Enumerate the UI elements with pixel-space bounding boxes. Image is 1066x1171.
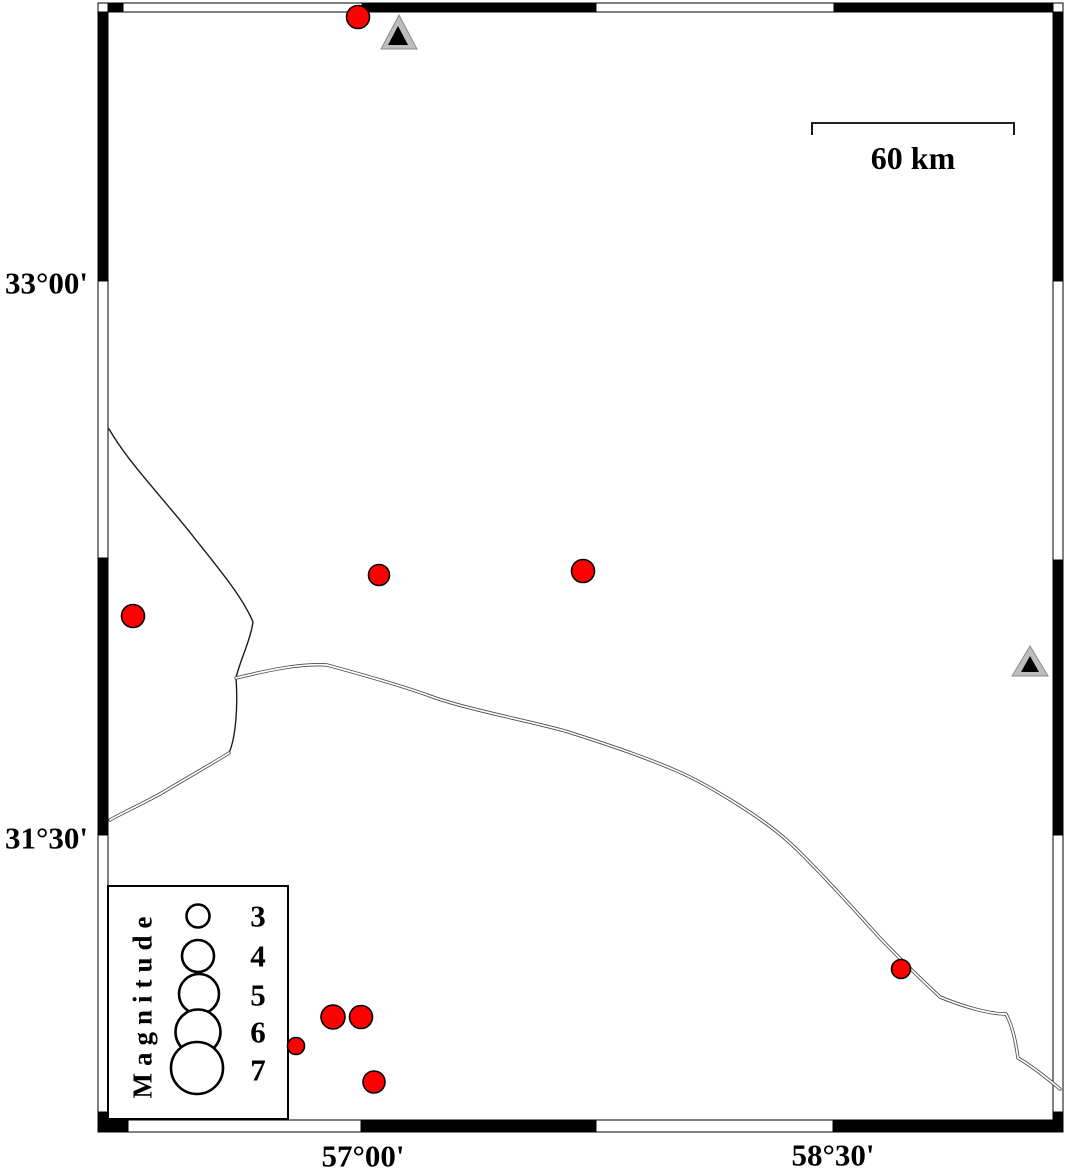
frame-bottom-segment bbox=[128, 1120, 361, 1132]
frame-right-segment bbox=[1053, 12, 1063, 281]
frame-right-segment bbox=[1053, 835, 1063, 1112]
legend-magnitude-3: 3 bbox=[250, 901, 266, 932]
province-boundary-line bbox=[109, 429, 253, 678]
legend-size-circle-4 bbox=[182, 940, 214, 972]
frame-right-segment bbox=[1053, 281, 1063, 560]
frame-left-segment bbox=[98, 558, 108, 835]
legend-magnitude-6: 6 bbox=[250, 1017, 266, 1048]
latitude-label-31-30: 31°30' bbox=[0, 823, 88, 854]
earthquake-marker bbox=[122, 605, 145, 628]
frame-left-segment bbox=[98, 1112, 108, 1132]
legend-magnitude-7: 7 bbox=[250, 1055, 266, 1086]
frame-top-segment bbox=[123, 3, 362, 12]
earthquake-marker bbox=[347, 6, 370, 29]
longitude-label-57-00: 57°00' bbox=[321, 1141, 404, 1171]
latitude-label-33-00: 33°00' bbox=[0, 268, 88, 299]
frame-top-segment bbox=[98, 3, 108, 12]
frame-bottom-segment bbox=[833, 1120, 1053, 1132]
frame-left-segment bbox=[98, 835, 108, 1112]
earthquake-marker bbox=[892, 960, 911, 979]
frame-left-segment bbox=[98, 12, 108, 281]
legend-magnitude-5: 5 bbox=[250, 980, 266, 1011]
seismicity-map: 33°00' 31°30' 57°00' 58°30' 60 km Magnit… bbox=[0, 0, 1066, 1171]
legend-title-magnitude: Magnitude bbox=[130, 909, 157, 1098]
frame-right-segment bbox=[1053, 560, 1063, 835]
frame-bottom-segment bbox=[361, 1120, 596, 1132]
earthquake-marker bbox=[288, 1038, 305, 1055]
earthquake-marker bbox=[572, 560, 595, 583]
frame-left-segment bbox=[98, 281, 108, 558]
longitude-label-58-30: 58°30' bbox=[791, 1140, 874, 1171]
scale-bar-bracket bbox=[812, 123, 1014, 135]
frame-top-segment bbox=[108, 3, 123, 12]
earthquake-marker bbox=[321, 1005, 345, 1029]
earthquake-marker bbox=[350, 1006, 373, 1029]
earthquake-marker bbox=[369, 565, 390, 586]
legend-size-circle-5 bbox=[179, 974, 219, 1014]
frame-right-segment bbox=[1053, 1112, 1063, 1132]
earthquake-marker bbox=[363, 1071, 385, 1093]
frame-top-segment bbox=[362, 3, 596, 12]
frame-bottom-segment bbox=[596, 1120, 833, 1132]
province-boundary-line bbox=[229, 678, 237, 753]
frame-top-segment bbox=[596, 3, 834, 12]
legend-magnitude-4: 4 bbox=[250, 941, 266, 972]
legend-size-circle-3 bbox=[187, 905, 210, 928]
scale-bar-label: 60 km bbox=[871, 142, 955, 174]
frame-right-segment bbox=[1053, 3, 1063, 12]
frame-top-segment bbox=[834, 3, 1053, 12]
legend-size-circle-7 bbox=[171, 1042, 223, 1094]
